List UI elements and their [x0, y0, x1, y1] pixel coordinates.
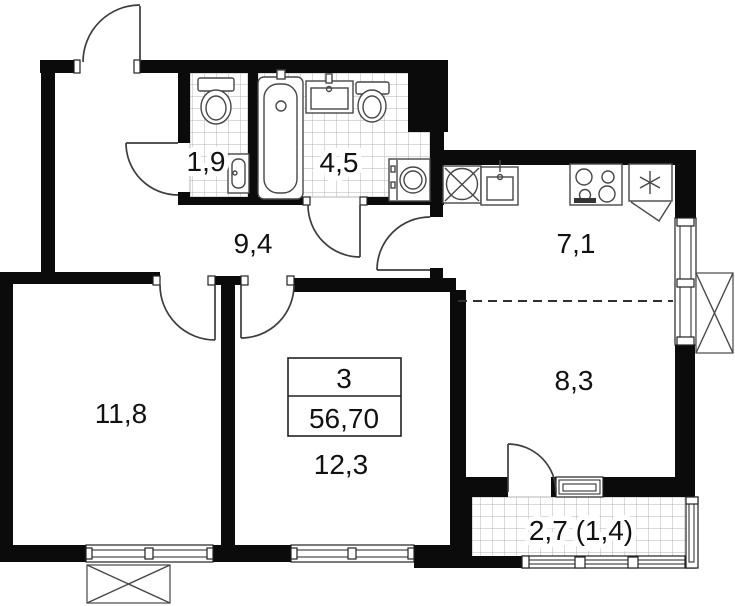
fridge-icon [629, 164, 672, 221]
bedroom-2-door [241, 285, 294, 338]
wall [0, 272, 160, 284]
wall [0, 545, 86, 562]
wc-door [126, 143, 178, 195]
fridge-door-swing [631, 202, 671, 221]
window-mullion [677, 337, 694, 345]
room-area-label-bedroom-1: 11,8 [95, 398, 147, 429]
wall [450, 290, 466, 497]
door-frame-mark [208, 276, 215, 285]
window-mullion [522, 556, 529, 568]
room-area-label-bedroom-2: 12,3 [314, 449, 369, 480]
wall [675, 150, 696, 218]
bedroom-2-window [291, 545, 414, 562]
wall [450, 497, 472, 557]
window-mullion [207, 548, 213, 559]
window-mullion [291, 548, 297, 559]
wall [603, 477, 675, 497]
toilet-icon [198, 78, 234, 124]
window-mullion [686, 497, 698, 504]
kitchen-window [675, 218, 696, 345]
floor-plan: 3 56,70 1,9 4,5 9,4 7,1 11,8 8,3 12,3 2,… [0, 0, 735, 606]
room-area-label-kitchen: 7,1 [557, 228, 596, 259]
bathtub-icon [258, 70, 303, 199]
balcony-door [508, 444, 556, 492]
door-swing-arc [508, 444, 556, 492]
window-mullion [677, 218, 694, 226]
door-swing-arc [83, 5, 140, 62]
window-mullion [145, 548, 153, 559]
door-swing-arc [241, 285, 294, 338]
room-area-label-balcony: 2,7 (1,4) [529, 515, 633, 546]
wall [414, 556, 522, 568]
wall [440, 150, 676, 165]
kitchen-door [377, 217, 430, 270]
room-area-label-wc: 1,9 [187, 146, 226, 177]
door-swing-arc [308, 205, 360, 257]
door-frame-mark [134, 60, 140, 73]
room-area-label-hallway: 9,4 [234, 228, 273, 259]
ac-unit-icon [696, 273, 733, 353]
wall [675, 345, 695, 497]
wall [140, 60, 448, 73]
wall [408, 60, 448, 132]
wall [450, 477, 508, 497]
window-frame [522, 556, 695, 568]
window-mullion [677, 279, 694, 287]
ac-unit-icon [87, 565, 170, 603]
window-mullion [408, 548, 414, 559]
door-swing-arc [160, 285, 215, 340]
door-frame-mark [241, 276, 248, 285]
corner-sink-icon [228, 154, 249, 193]
door-swing-arc [126, 143, 178, 195]
window-mullion [348, 548, 356, 559]
door-swing-arc [377, 217, 430, 270]
balcony-glazing-right [686, 497, 698, 568]
stove-handle [574, 198, 596, 203]
washing-machine-icon [389, 159, 430, 201]
room-area-label-bathroom: 4,5 [320, 147, 359, 178]
door-frame-mark [74, 60, 80, 73]
balcony-glazing-bottom [522, 556, 697, 568]
wall [221, 277, 235, 546]
counter-basin-icon [481, 160, 518, 205]
door-frame-mark [287, 276, 294, 285]
door-frame-mark [303, 197, 310, 205]
door-frame-mark [153, 276, 160, 285]
info-box: 3 56,70 [288, 358, 401, 436]
wall [430, 205, 443, 217]
wall [0, 272, 13, 562]
window-mullion [628, 557, 638, 568]
entrance-door [83, 5, 140, 62]
kitchen-sink-icon [443, 166, 481, 203]
wall [178, 73, 190, 143]
stove-icon [570, 164, 622, 205]
bedroom-1-door [160, 285, 215, 340]
floor-plan-canvas: 3 56,70 1,9 4,5 9,4 7,1 11,8 8,3 12,3 2,… [0, 0, 735, 606]
room-area-label-living-room: 8,3 [555, 365, 594, 396]
wall [41, 60, 55, 284]
door-frame-mark [360, 197, 367, 205]
window-mullion [575, 557, 585, 568]
total-area-label: 56,70 [309, 403, 379, 434]
bedroom-1-window [86, 545, 213, 562]
bathroom-door [308, 205, 360, 257]
rooms-count-label: 3 [336, 363, 352, 394]
wall [430, 268, 443, 283]
window-mullion [86, 548, 92, 559]
window-frame [686, 497, 698, 568]
balcony-window [556, 477, 603, 497]
wall [213, 545, 291, 562]
